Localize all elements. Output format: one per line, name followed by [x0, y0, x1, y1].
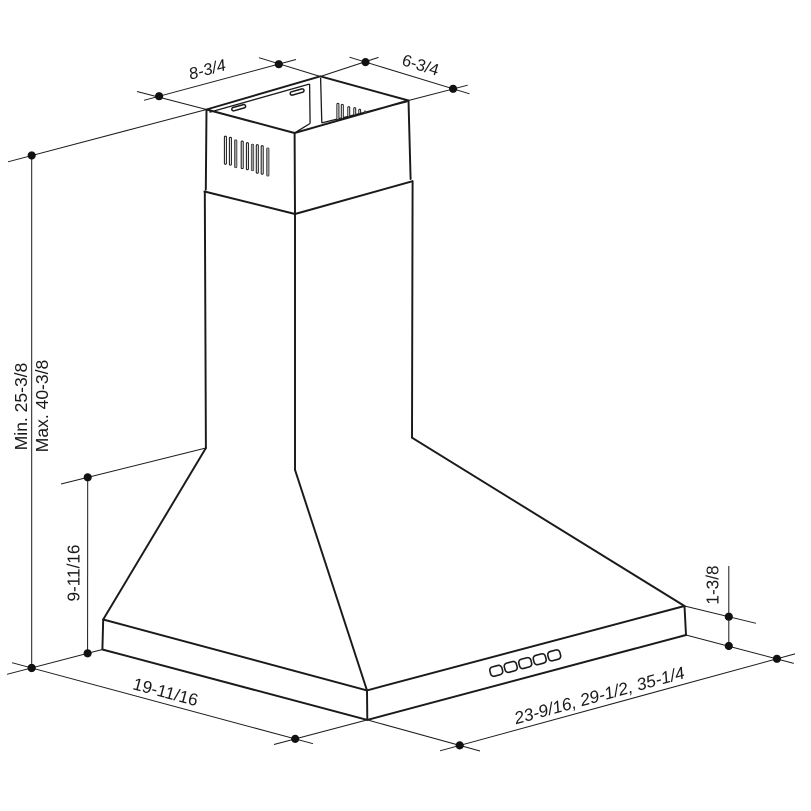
svg-text:Min. 25-3/8: Min. 25-3/8 [11, 363, 31, 451]
svg-text:9-11/16: 9-11/16 [64, 544, 84, 601]
svg-text:Max. 40-3/8: Max. 40-3/8 [32, 360, 52, 452]
svg-text:1-3/8: 1-3/8 [703, 565, 723, 604]
